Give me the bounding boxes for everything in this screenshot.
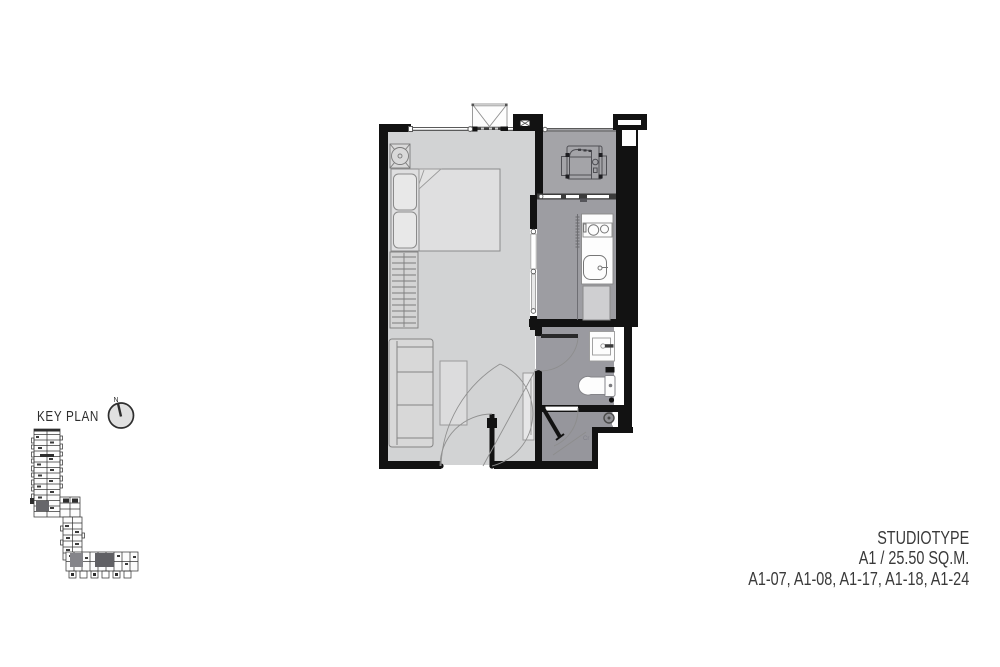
svg-text:Cr: Cr xyxy=(583,436,589,442)
svg-text:N: N xyxy=(114,397,119,404)
